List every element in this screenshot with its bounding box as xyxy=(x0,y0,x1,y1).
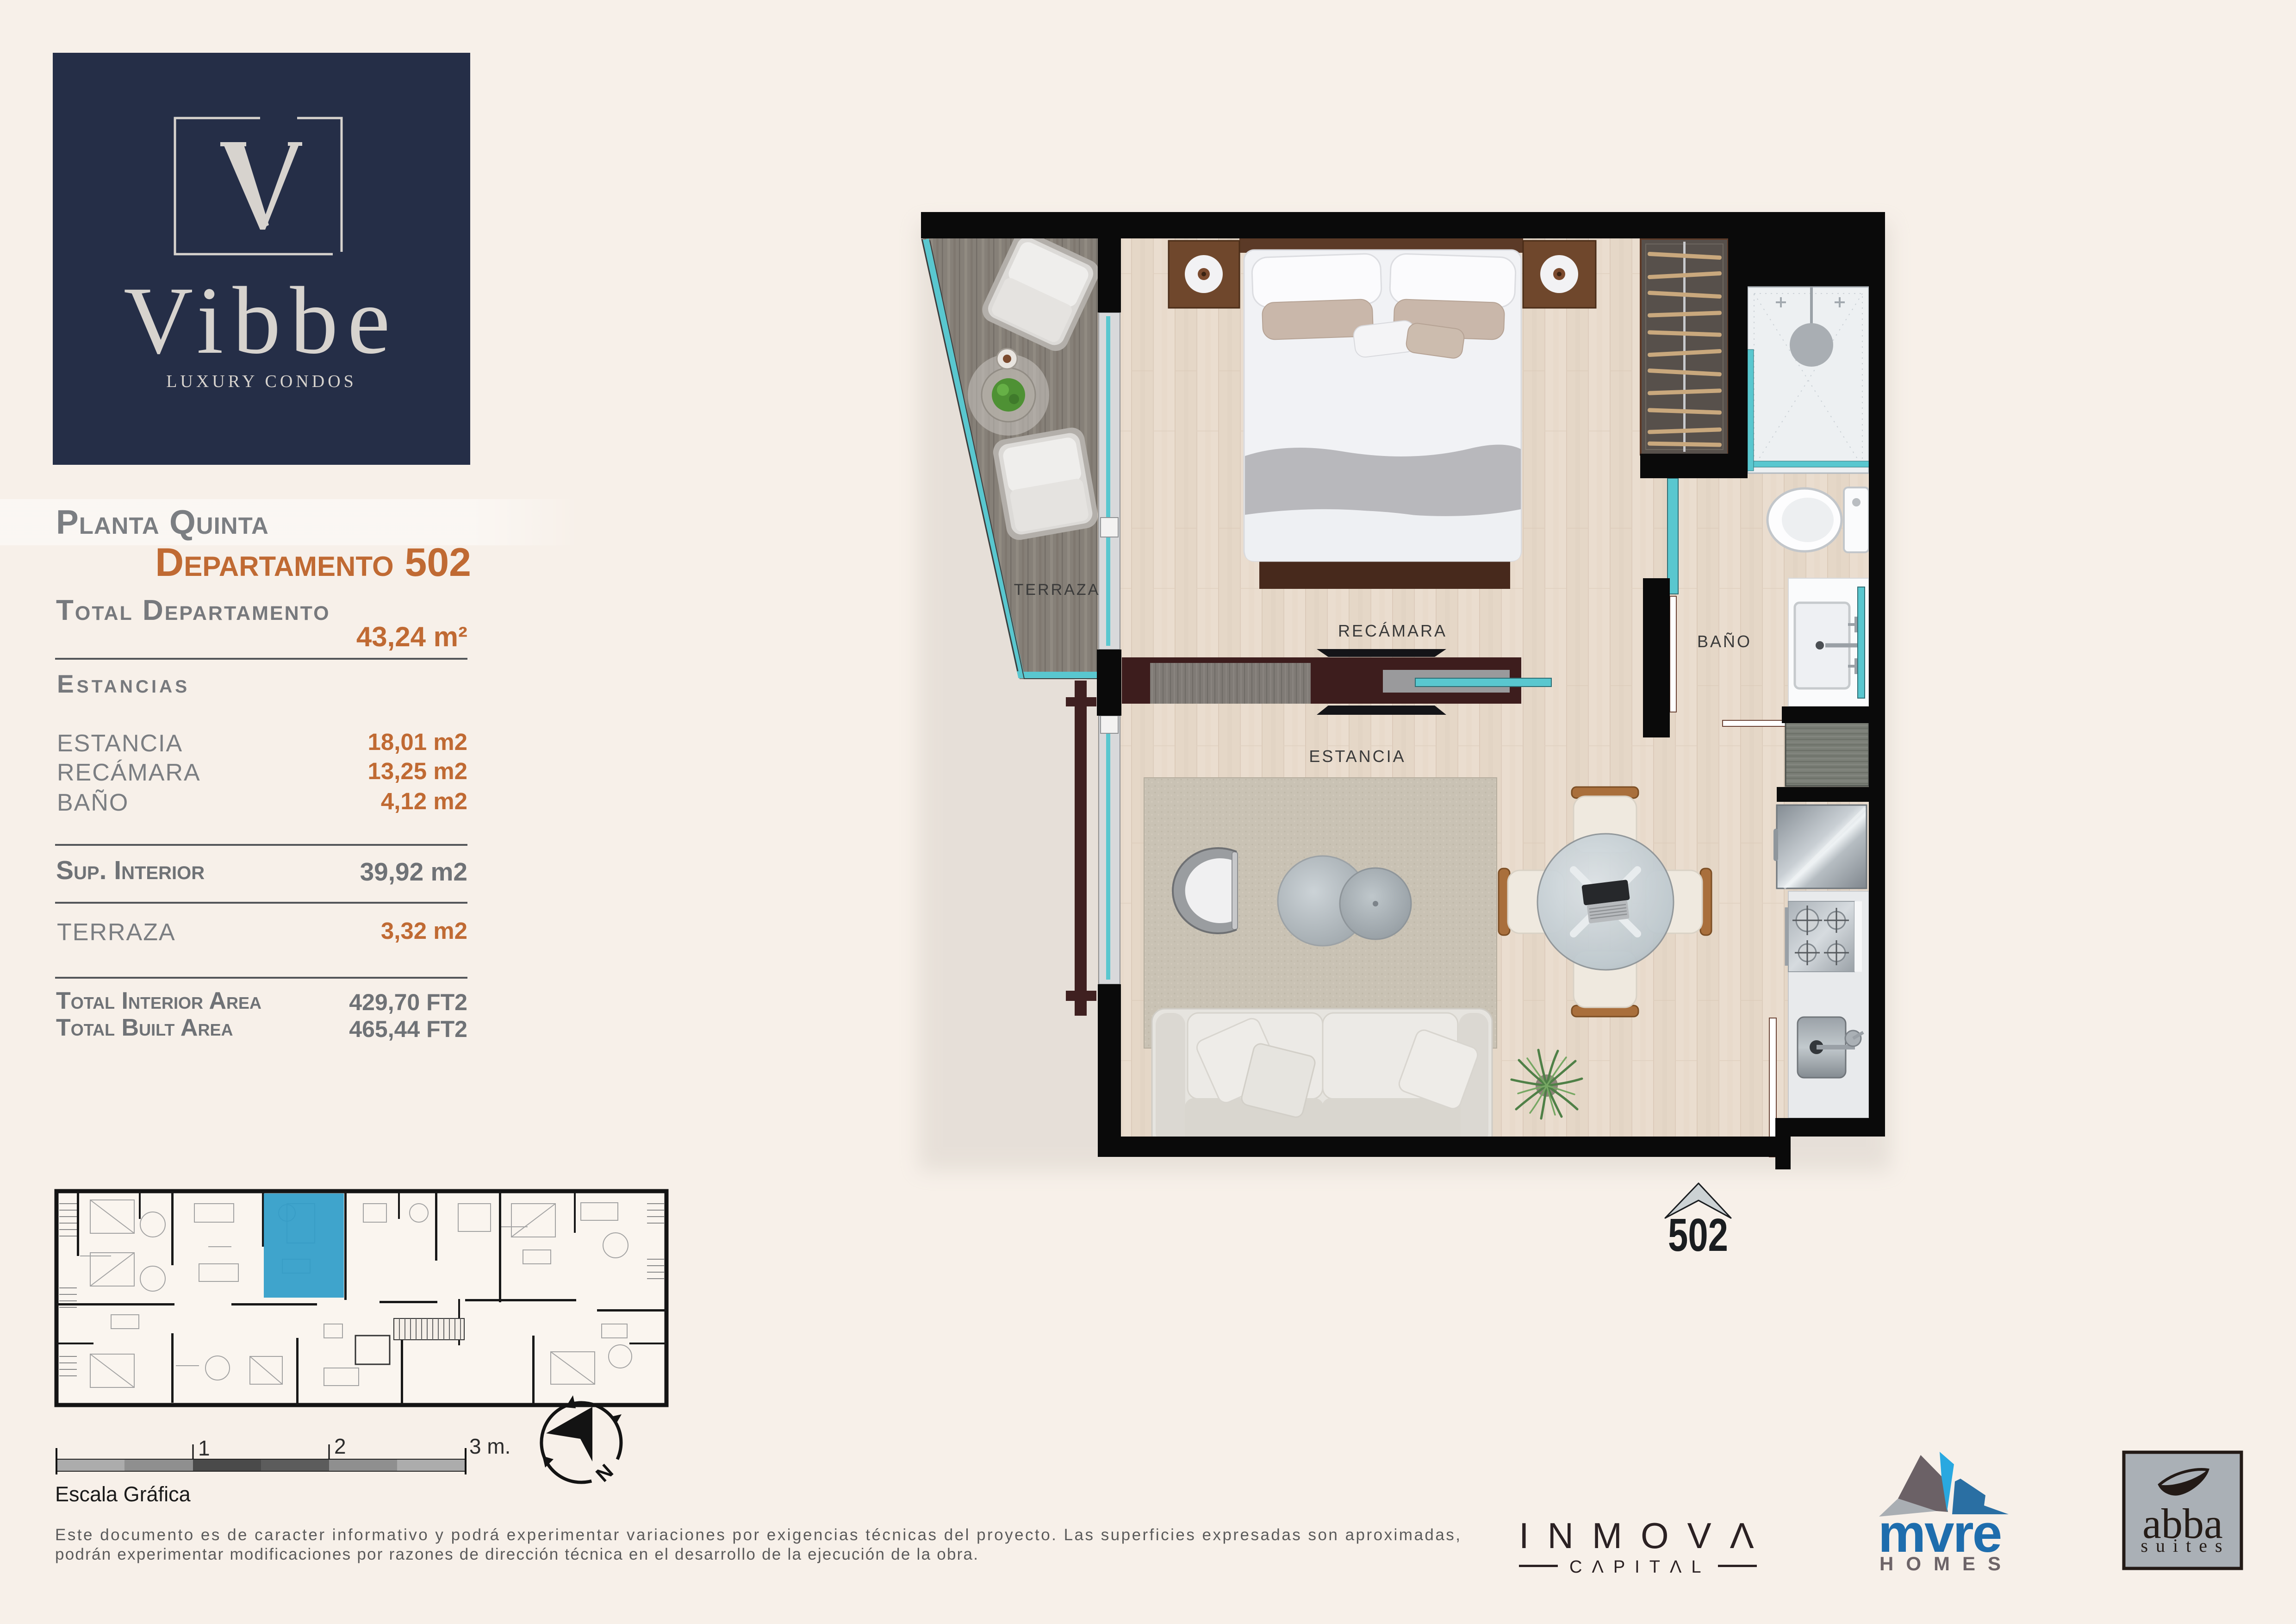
svg-text:INMOVΛ: INMOVΛ xyxy=(1519,1515,1773,1556)
svg-text:RECÁMARA: RECÁMARA xyxy=(1338,621,1447,640)
svg-text:suites: suites xyxy=(2140,1535,2230,1556)
svg-text:N: N xyxy=(591,1460,617,1487)
svg-text:Este documento es de caracter: Este documento es de caracter informativ… xyxy=(55,1526,1460,1544)
svg-text:BAÑO: BAÑO xyxy=(1697,632,1752,651)
svg-text:TERRAZA: TERRAZA xyxy=(1014,581,1101,599)
svg-text:Escala Gráfica: Escala Gráfica xyxy=(55,1482,191,1506)
svg-text:502: 502 xyxy=(1668,1209,1728,1261)
svg-text:2: 2 xyxy=(334,1434,346,1458)
svg-text:CΛPITΛL: CΛPITΛL xyxy=(1569,1557,1711,1577)
svg-text:1: 1 xyxy=(198,1436,210,1460)
svg-text:3 m.: 3 m. xyxy=(469,1434,510,1458)
svg-text:HOMES: HOMES xyxy=(1879,1553,2013,1574)
svg-text:podrán experimentar modificaci: podrán experimentar modificaciones por r… xyxy=(55,1545,978,1563)
svg-text:ESTANCIA: ESTANCIA xyxy=(1309,747,1406,766)
